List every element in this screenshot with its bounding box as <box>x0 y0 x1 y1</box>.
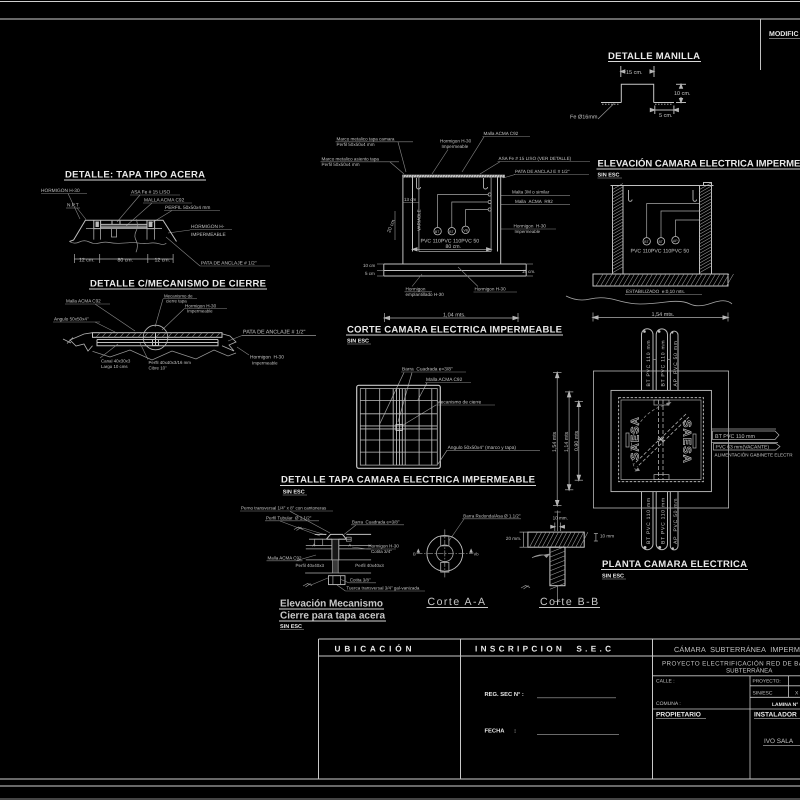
svg-text:CALLE :: CALLE : <box>656 678 675 684</box>
svg-text:Hormigon H-30: Hormigon H-30 <box>514 224 547 229</box>
svg-text:Hormigon: Hormigon <box>406 287 426 292</box>
svg-text:HORMIGON H-30: HORMIGON H-30 <box>41 188 80 194</box>
svg-text:INSTALADOR: INSTALADOR <box>754 711 797 718</box>
svg-text:PATA DE ANCLAJ E # 1/2": PATA DE ANCLAJ E # 1/2" <box>515 169 570 174</box>
svg-text:BT: BT <box>644 240 648 244</box>
svg-text:1,54 mts: 1,54 mts <box>552 431 558 452</box>
svg-text:PLANTA CAMARA ELECTRICA: PLANTA CAMARA ELECTRICA <box>602 559 747 570</box>
svg-text:PATA DE ANCLAJE # 1/2": PATA DE ANCLAJE # 1/2" <box>243 330 306 336</box>
svg-text:HORMIGON H-: HORMIGON H- <box>191 224 225 230</box>
svg-text:CÁMARA SUBTERRÁNEA IMPERMEAB: CÁMARA SUBTERRÁNEA IMPERMEABLE <box>674 645 800 654</box>
svg-text:emplantillado H-30: emplantillado H-30 <box>406 292 445 297</box>
svg-text:Marco metalico tapa camara: Marco metalico tapa camara <box>337 137 395 142</box>
svg-text:20 mm.: 20 mm. <box>506 536 521 541</box>
svg-text:SIN ESC: SIN ESC <box>598 173 620 179</box>
svg-text:5 cm: 5 cm <box>365 271 375 276</box>
svg-text:1,04 mts.: 1,04 mts. <box>443 313 466 319</box>
svg-text:15 cm.: 15 cm. <box>522 269 536 274</box>
svg-text:1,54 mts.: 1,54 mts. <box>652 312 675 318</box>
svg-text:Impermeable: Impermeable <box>515 229 541 234</box>
svg-text:REG. SEC N° :: REG. SEC N° : <box>485 691 524 698</box>
svg-text:Corte B-B: Corte B-B <box>540 596 600 608</box>
svg-text:Tuerca transversal 3/4" gal-va: Tuerca transversal 3/4" gal-vanizada <box>346 586 419 591</box>
svg-text:CORTE CAMARA ELECTRICA IMPERME: CORTE CAMARA ELECTRICA IMPERMEABLE <box>347 325 562 336</box>
svg-text:SIN ESC: SIN ESC <box>280 624 302 630</box>
svg-text:Elevación Mecanismo: Elevación Mecanismo <box>280 599 383 610</box>
svg-text:Malla ACMA C92: Malla ACMA C92 <box>268 555 303 560</box>
svg-text:Marco metalico asiento tapa: Marco metalico asiento tapa <box>322 157 380 162</box>
svg-text:LAMINA N°: LAMINA N° <box>772 702 798 708</box>
svg-text:Cierre para tapa acera: Cierre para tapa acera <box>280 611 385 622</box>
svg-text:10 cm.: 10 cm. <box>674 91 691 97</box>
svg-text:BT: BT <box>435 230 439 234</box>
svg-text:Barra Cuadrada e=3/8": Barra Cuadrada e=3/8" <box>402 367 453 373</box>
svg-text:FECHA :: FECHA : <box>485 728 517 735</box>
svg-text:N.P.T: N.P.T <box>67 203 79 209</box>
svg-text:Corte A-A: Corte A-A <box>428 596 487 608</box>
svg-text:DETALLE MANILLA: DETALLE MANILLA <box>608 51 700 62</box>
svg-text:VARIABLE: VARIABLE <box>417 209 422 231</box>
svg-text:13 cm: 13 cm <box>404 197 417 202</box>
svg-text:10 mm.: 10 mm. <box>553 515 568 520</box>
svg-text:MALLA ACMA C92: MALLA ACMA C92 <box>144 198 185 204</box>
svg-text:DETALLE C/MECANISMO DE CIERRE: DETALLE C/MECANISMO DE CIERRE <box>90 279 266 290</box>
svg-text:PVC 110PVC 110PVC 50: PVC 110PVC 110PVC 50 <box>631 249 690 255</box>
svg-text:80 cm.: 80 cm. <box>446 244 462 250</box>
svg-text:10 mm: 10 mm <box>600 534 614 539</box>
svg-text:Cotita 3/4": Cotita 3/4" <box>371 549 392 554</box>
svg-text:BT: BT <box>659 240 663 244</box>
svg-text:PROPIETARIO: PROPIETARIO <box>656 711 701 718</box>
svg-text:Hormigon H-30: Hormigon H-30 <box>368 544 399 549</box>
svg-text:IVO SALA: IVO SALA <box>764 738 794 745</box>
svg-text:ASA Fe # 15 LISO: ASA Fe # 15 LISO <box>131 190 170 196</box>
svg-text:Mecanismo de cierre: Mecanismo de cierre <box>437 400 482 406</box>
svg-text:SIN ESC: SIN ESC <box>283 490 305 496</box>
svg-text:Vb: Vb <box>474 552 480 557</box>
svg-text:PATA DE ANCLAJE # 1/2": PATA DE ANCLAJE # 1/2" <box>201 261 257 267</box>
svg-text:Impermeable: Impermeable <box>187 309 213 314</box>
svg-text:SIN/ESC: SIN/ESC <box>753 690 773 696</box>
svg-text:ELEVACIÓN CAMARA ELECTRICA IMP: ELEVACIÓN CAMARA ELECTRICA IMPERMEABLE <box>598 158 800 170</box>
svg-text:Malla ACMA C92: Malla ACMA C92 <box>66 299 101 304</box>
svg-text:AP: AP <box>673 239 678 243</box>
svg-text:Angulo 50x50x4": Angulo 50x50x4" <box>54 317 89 322</box>
svg-text:Barra Cuadrada e=3/8": Barra Cuadrada e=3/8" <box>352 519 400 524</box>
svg-text:SAESA: SAESA <box>681 420 693 464</box>
svg-text:SIN ESC: SIN ESC <box>602 574 624 580</box>
svg-text:VB: VB <box>463 228 468 232</box>
svg-text:12 cm.: 12 cm. <box>155 258 171 264</box>
svg-text:Cotita 3/8": Cotita 3/8" <box>350 577 371 582</box>
svg-text:Malla ACMA R92: Malla ACMA R92 <box>515 199 553 204</box>
svg-text:Hormigon H-30: Hormigon H-30 <box>475 287 507 292</box>
svg-text:BT PVC 110 mm: BT PVC 110 mm <box>646 340 652 387</box>
svg-text:Fe Ø16mm: Fe Ø16mm <box>570 115 598 121</box>
svg-text:BT PVC 110 mm: BT PVC 110 mm <box>715 434 755 440</box>
svg-text:Largo 10 cms: Largo 10 cms <box>101 364 128 369</box>
svg-text:BT: BT <box>449 230 453 234</box>
svg-text:Perfil 50x50x4 mm: Perfil 50x50x4 mm <box>322 162 360 167</box>
svg-text:Malla ACMA C92: Malla ACMA C92 <box>484 131 519 136</box>
svg-text:PERFIL 50x50x4 mm: PERFIL 50x50x4 mm <box>165 205 210 211</box>
svg-text:MODIFIC: MODIFIC <box>769 31 799 38</box>
svg-text:BT PVC 110 mm: BT PVC 110 mm <box>646 497 652 544</box>
svg-text:Hormigon H-30: Hormigon H-30 <box>440 139 472 144</box>
svg-text:BT PVC 110 mm: BT PVC 110 mm <box>660 340 666 387</box>
svg-text:Perfil 40x40x3/16 mm: Perfil 40x40x3/16 mm <box>149 360 192 365</box>
svg-text:1,14 mts: 1,14 mts <box>564 431 570 452</box>
svg-text:PROYECTO ELECTRIFICACIÓN RED D: PROYECTO ELECTRIFICACIÓN RED DE BAJA TEN… <box>662 660 800 668</box>
svg-text:ESTABILIZADO e:0,10 mts.: ESTABILIZADO e:0,10 mts. <box>626 289 685 294</box>
svg-text:Cibre 10": Cibre 10" <box>149 366 168 371</box>
svg-text:PROYECTO:: PROYECTO: <box>753 679 781 685</box>
svg-text:Perfil 50x50x4 mm: Perfil 50x50x4 mm <box>337 142 375 147</box>
svg-text:AP PVC 50 mm: AP PVC 50 mm <box>673 498 679 544</box>
svg-text:SIN ESC: SIN ESC <box>347 339 369 345</box>
svg-text:10 cm: 10 cm <box>363 263 376 268</box>
svg-text:Angulo 50x50x4" (marco y tapa): Angulo 50x50x4" (marco y tapa) <box>448 445 517 451</box>
svg-text:5 cm.: 5 cm. <box>659 113 673 119</box>
svg-text:COMUNA :: COMUNA : <box>656 701 681 707</box>
svg-text:Impermeable: Impermeable <box>252 361 278 366</box>
svg-text:Perfil Tubular Ø 1.1/2": Perfil Tubular Ø 1.1/2" <box>266 515 312 520</box>
svg-text:Perfil 40x40x3: Perfil 40x40x3 <box>355 563 384 568</box>
svg-text:AP PVC 50 mm: AP PVC 50 mm <box>673 340 679 386</box>
svg-text:SUBTERRÁNEA: SUBTERRÁNEA <box>726 667 773 675</box>
svg-text:Malla ACMA C92: Malla ACMA C92 <box>426 377 463 383</box>
svg-text:ALIMENTACIÓN GABINETE ELECTR: ALIMENTACIÓN GABINETE ELECTR <box>715 452 794 457</box>
svg-text:DETALLE TAPA CAMARA ELECTRICA: DETALLE TAPA CAMARA ELECTRICA IMPERMEABL… <box>281 475 535 486</box>
svg-text:12 cm.: 12 cm. <box>79 258 95 264</box>
svg-text:15 cm.: 15 cm. <box>626 70 643 76</box>
svg-text:BT PVC 110 mm: BT PVC 110 mm <box>660 497 666 544</box>
svg-text:0,90 mts: 0,90 mts <box>574 430 580 451</box>
svg-text:IMPERMEABLE: IMPERMEABLE <box>191 232 226 238</box>
svg-text:Barra Redonda/Asa Ø 1.1/2": Barra Redonda/Asa Ø 1.1/2" <box>463 513 521 518</box>
svg-text:80 cm.: 80 cm. <box>118 258 134 264</box>
svg-text:U B I C A C I Ó N: U B I C A C I Ó N <box>335 644 412 654</box>
svg-text:ASA Fe # 15 LISO (VER DETALLE): ASA Fe # 15 LISO (VER DETALLE) <box>499 156 572 161</box>
svg-text:Perno transversal 1/4" x 8" co: Perno transversal 1/4" x 8" con cantoner… <box>241 506 327 511</box>
svg-text:Impermeable: Impermeable <box>442 144 469 149</box>
svg-text:Malta 3M o similar: Malta 3M o similar <box>512 190 550 195</box>
svg-text:Canal 40x30x3: Canal 40x30x3 <box>101 359 131 364</box>
svg-text:DETALLE: TAPA TIPO ACERA: DETALLE: TAPA TIPO ACERA <box>65 170 205 181</box>
svg-text:Perfil 40x40x3: Perfil 40x40x3 <box>296 563 325 568</box>
svg-text:B: B <box>413 552 416 557</box>
svg-text:PVC 63 mm(VACANTE): PVC 63 mm(VACANTE) <box>716 445 770 451</box>
